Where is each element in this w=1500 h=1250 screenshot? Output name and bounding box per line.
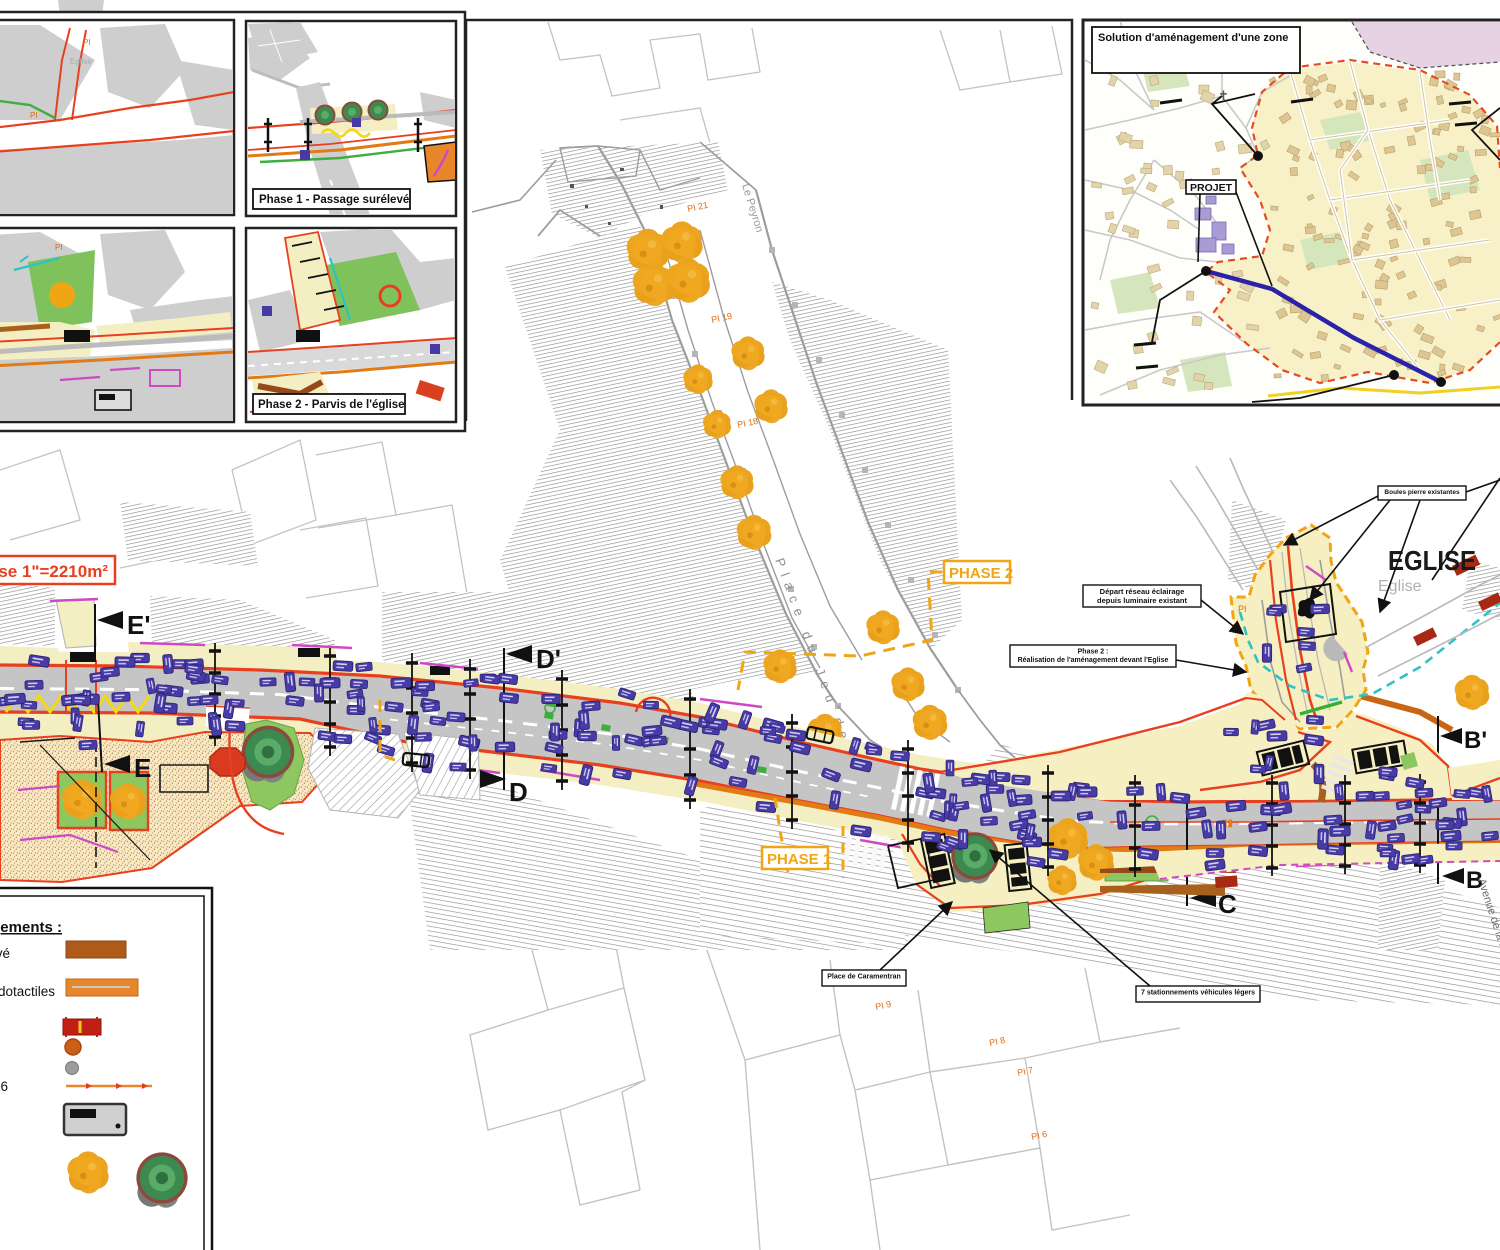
svg-text:Solution d'aménagement d'une z: Solution d'aménagement d'une zone: [1098, 32, 1288, 44]
svg-text:Phase 2 :: Phase 2 :: [1078, 649, 1109, 656]
svg-text:D': D': [536, 644, 561, 674]
svg-text:Place de Caramentran: Place de Caramentran: [827, 974, 901, 981]
svg-text:B': B': [1464, 727, 1487, 754]
svg-text:Réalisation de l'aménagement d: Réalisation de l'aménagement devant l'Eg…: [1018, 657, 1169, 664]
svg-text:PI: PI: [83, 38, 91, 47]
svg-text:PHASE 2: PHASE 2: [949, 565, 1013, 582]
svg-text:Phase 2 - Parvis de l'église: Phase 2 - Parvis de l'église: [258, 399, 405, 411]
svg-text:Phase 1"=2210m²: Phase 1"=2210m²: [0, 562, 108, 581]
svg-text:E': E': [127, 610, 151, 640]
svg-text:✝: ✝: [1218, 88, 1229, 103]
svg-text:E: E: [134, 753, 151, 783]
svg-text:Eglise: Eglise: [70, 57, 92, 66]
svg-text:RD 996: RD 996: [0, 1079, 8, 1094]
svg-text:Départ réseau éclairage: Départ réseau éclairage: [1100, 587, 1185, 596]
svg-text:PHASE 1: PHASE 1: [767, 851, 831, 868]
svg-text:Phase 1 - Passage surélevé: Phase 1 - Passage surélevé: [259, 194, 409, 206]
svg-text:Aménagements :: Aménagements :: [0, 919, 62, 936]
svg-text:Bandes podotactiles: Bandes podotactiles: [0, 984, 55, 999]
svg-text:depuis luminaire existant: depuis luminaire existant: [1097, 596, 1188, 605]
svg-text:Béton désactivé: Béton désactivé: [0, 946, 10, 961]
svg-text:EGLISE: EGLISE: [1388, 545, 1476, 576]
svg-text:Boules pierre existantes: Boules pierre existantes: [1384, 489, 1460, 496]
svg-text:PROJET: PROJET: [1190, 182, 1233, 194]
svg-text:PI: PI: [30, 111, 38, 120]
svg-text:PI: PI: [55, 243, 63, 252]
svg-text:Eglise: Eglise: [1378, 578, 1422, 595]
svg-text:D: D: [509, 777, 528, 807]
svg-text:7 stationnements véhicules lég: 7 stationnements véhicules légers: [1141, 990, 1255, 997]
